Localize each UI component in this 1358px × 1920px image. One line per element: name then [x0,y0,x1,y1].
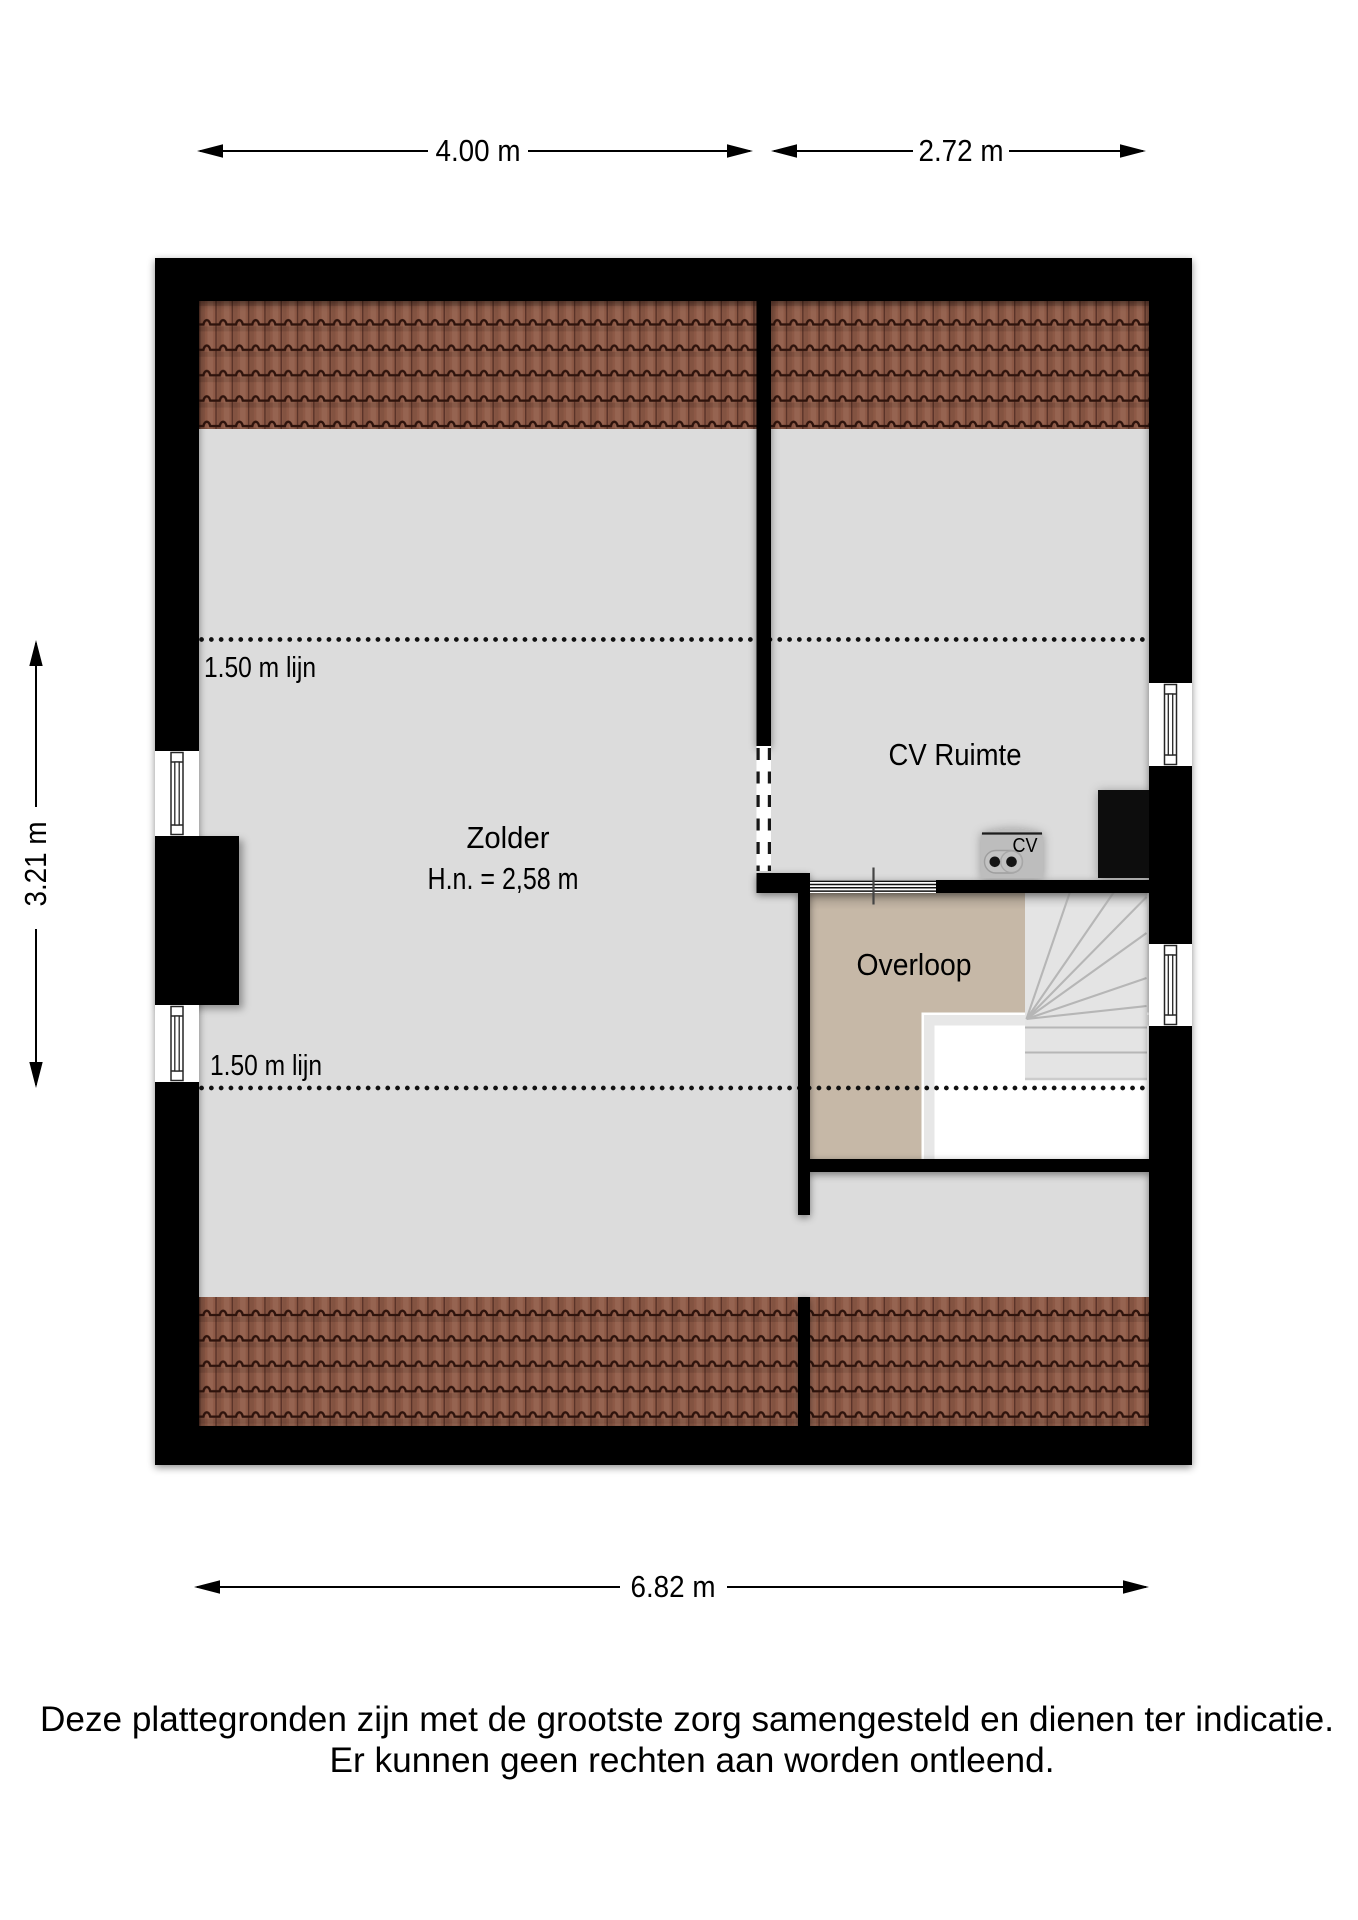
svg-text:Er kunnen geen rechten aan wor: Er kunnen geen rechten aan worden ontlee… [330,1741,1055,1780]
svg-text:Overloop: Overloop [857,947,972,982]
svg-text:2.72 m: 2.72 m [919,133,1004,168]
svg-text:1.50 m lijn: 1.50 m lijn [210,1050,322,1082]
svg-text:Deze plattegronden zijn met de: Deze plattegronden zijn met de grootste … [40,1700,1334,1739]
svg-text:6.82 m: 6.82 m [631,1569,716,1604]
svg-text:Zolder: Zolder [467,820,550,855]
svg-text:CV Ruimte: CV Ruimte [889,737,1022,772]
svg-text:1.50 m lijn: 1.50 m lijn [204,652,316,684]
svg-text:3.21 m: 3.21 m [18,822,53,907]
svg-text:H.n. = 2,58 m: H.n. = 2,58 m [428,861,579,896]
svg-text:4.00 m: 4.00 m [436,133,521,168]
svg-text:CV: CV [1013,835,1039,857]
